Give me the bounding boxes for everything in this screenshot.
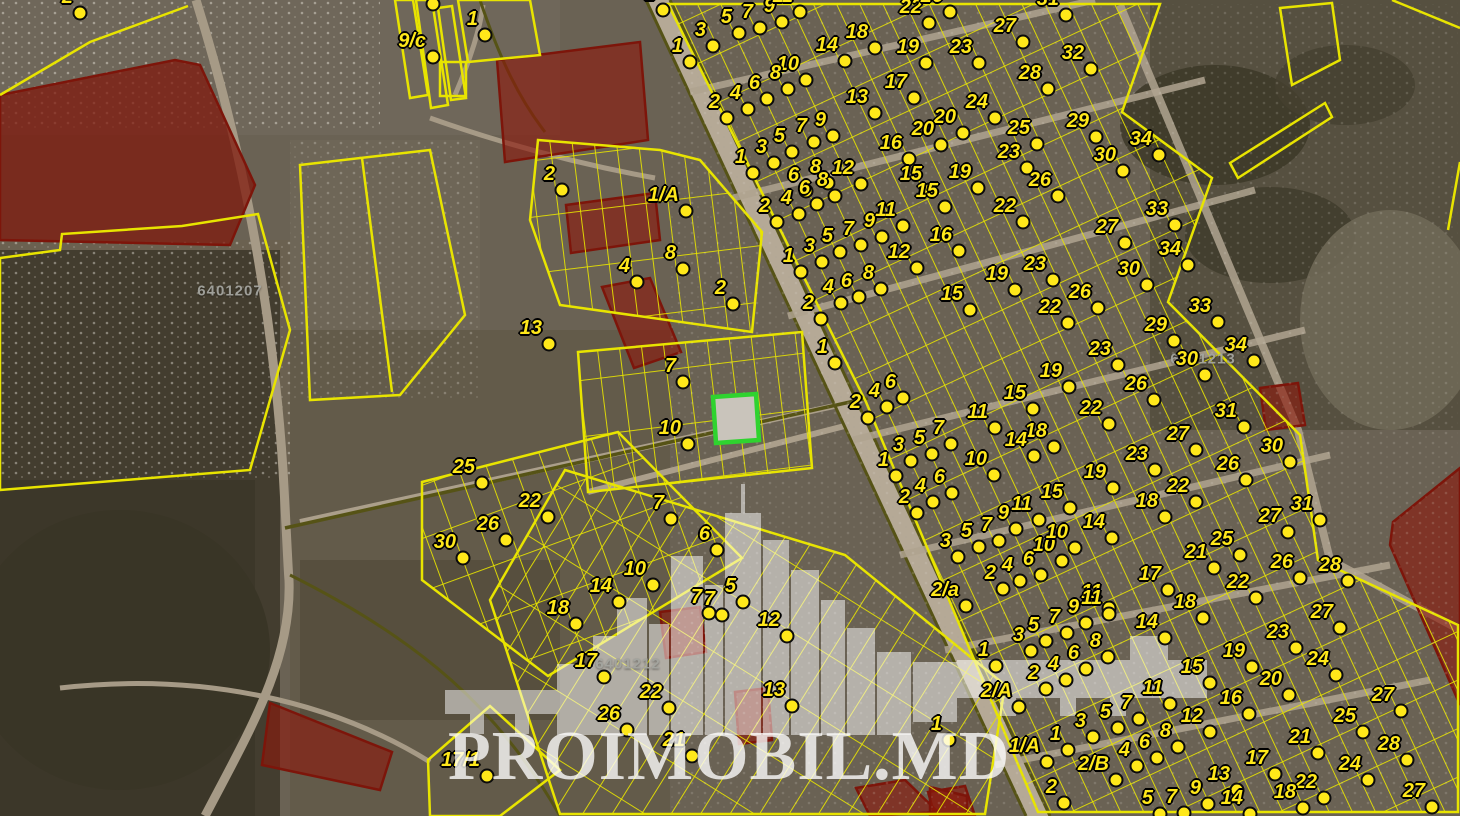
parcel-number-label: 13: [520, 318, 542, 338]
parcel-marker[interactable]: [1061, 743, 1076, 758]
parcel-number-label: 20: [1260, 669, 1282, 689]
parcel-number-label: 5: [774, 126, 785, 146]
parcel-marker[interactable]: [1116, 164, 1131, 179]
parcel-marker[interactable]: [996, 582, 1011, 597]
parcel-marker[interactable]: [1008, 283, 1023, 298]
parcel-marker[interactable]: [794, 265, 809, 280]
parcel-marker[interactable]: [1168, 218, 1183, 233]
parcel-marker[interactable]: [706, 39, 721, 54]
parcel-marker[interactable]: [426, 0, 441, 12]
parcel-marker[interactable]: [1177, 806, 1192, 816]
parcel-marker[interactable]: [1032, 513, 1047, 528]
parcel-marker[interactable]: [963, 303, 978, 318]
parcel-marker[interactable]: [569, 617, 584, 632]
parcel-number-label: 4: [869, 381, 880, 401]
parcel-number-label: 20: [912, 119, 934, 139]
parcel-marker[interactable]: [1333, 621, 1348, 636]
parcel-number-label: 19: [1223, 641, 1245, 661]
parcel-number-label: 23: [1024, 254, 1046, 274]
parcel-marker[interactable]: [810, 197, 825, 212]
parcel-marker[interactable]: [1152, 148, 1167, 163]
parcel-number-label: 30: [1176, 349, 1198, 369]
parcel-marker[interactable]: [1118, 236, 1133, 251]
parcel-number-label: 12: [758, 610, 780, 630]
parcel-number-label: 30: [434, 532, 456, 552]
parcel-marker[interactable]: [944, 437, 959, 452]
parcel-marker[interactable]: [1203, 725, 1218, 740]
parcel-number-label: 9: [1068, 597, 1079, 617]
parcel-number-label: 1: [878, 450, 889, 470]
parcel-number-label: 1: [467, 9, 478, 29]
parcel-marker[interactable]: [781, 82, 796, 97]
parcel-marker[interactable]: [732, 26, 747, 41]
parcel-number-label: 6: [885, 372, 896, 392]
parcel-marker[interactable]: [1245, 660, 1260, 675]
parcel-marker[interactable]: [662, 701, 677, 716]
parcel-number-label: 26: [1029, 170, 1051, 190]
parcel-marker[interactable]: [1341, 574, 1356, 589]
parcel-marker[interactable]: [896, 391, 911, 406]
parcel-marker[interactable]: [612, 595, 627, 610]
parcel-marker[interactable]: [785, 699, 800, 714]
parcel-number-label: 2: [899, 487, 910, 507]
parcel-marker[interactable]: [1051, 189, 1066, 204]
parcel-number-label: 14: [1083, 512, 1105, 532]
parcel-marker[interactable]: [770, 215, 785, 230]
parcel-marker[interactable]: [868, 41, 883, 56]
parcel-marker[interactable]: [760, 92, 775, 107]
parcel-marker[interactable]: [1167, 334, 1182, 349]
parcel-marker[interactable]: [555, 183, 570, 198]
parcel-marker[interactable]: [681, 437, 696, 452]
parcel-marker[interactable]: [1046, 273, 1061, 288]
parcel-number-label: 23: [1267, 622, 1289, 642]
parcel-marker[interactable]: [1400, 753, 1415, 768]
parcel-marker[interactable]: [868, 106, 883, 121]
parcel-number-label: 25: [1334, 706, 1356, 726]
parcel-marker[interactable]: [852, 290, 867, 305]
parcel-marker[interactable]: [971, 181, 986, 196]
parcel-marker[interactable]: [1283, 455, 1298, 470]
parcel-marker[interactable]: [1111, 358, 1126, 373]
parcel-number-label: 2/B: [1078, 754, 1109, 774]
parcel-marker[interactable]: [73, 6, 88, 21]
parcel-number-label: 2: [645, 0, 656, 4]
parcel-number-label: 7: [742, 2, 753, 22]
parcel-marker[interactable]: [896, 219, 911, 234]
parcel-number-label: 11: [772, 0, 793, 6]
parcel-marker[interactable]: [1084, 62, 1099, 77]
parcel-number-label: 4: [781, 188, 792, 208]
parcel-marker[interactable]: [988, 111, 1003, 126]
parcel-marker[interactable]: [1163, 697, 1178, 712]
parcel-marker[interactable]: [767, 156, 782, 171]
parcel-marker[interactable]: [854, 238, 869, 253]
parcel-number-label: 10: [659, 418, 681, 438]
parcel-marker[interactable]: [1068, 541, 1083, 556]
parcel-number-label: 12: [888, 242, 910, 262]
parcel-number-label: 5: [721, 7, 732, 27]
parcel-marker[interactable]: [1296, 801, 1311, 816]
parcel-marker[interactable]: [951, 550, 966, 565]
parcel-marker[interactable]: [1086, 730, 1101, 745]
parcel-marker[interactable]: [1425, 800, 1440, 815]
parcel-marker[interactable]: [922, 16, 937, 31]
parcel-marker[interactable]: [1171, 740, 1186, 755]
parcel-marker[interactable]: [746, 166, 761, 181]
parcel-marker[interactable]: [792, 207, 807, 222]
parcel-marker[interactable]: [1079, 616, 1094, 631]
parcel-number-label: 34: [1130, 129, 1152, 149]
parcel-number-label: 28: [1378, 734, 1400, 754]
parcel-marker[interactable]: [814, 312, 829, 327]
parcel-marker[interactable]: [1147, 393, 1162, 408]
parcel-number-label: 16: [880, 133, 902, 153]
parcel-number-label: 8: [863, 263, 874, 283]
parcel-number-label: 29: [1145, 315, 1167, 335]
parcel-number-label: 18: [1025, 421, 1047, 441]
parcel-marker[interactable]: [478, 28, 493, 43]
parcel-number-label: 13: [763, 680, 785, 700]
parcel-marker[interactable]: [1282, 688, 1297, 703]
parcel-marker[interactable]: [907, 91, 922, 106]
parcel-number-label: 1: [783, 246, 794, 266]
parcel-marker[interactable]: [1394, 704, 1409, 719]
parcel-marker[interactable]: [541, 510, 556, 525]
parcel-marker[interactable]: [1150, 751, 1165, 766]
parcel-marker[interactable]: [834, 296, 849, 311]
parcel-marker[interactable]: [683, 55, 698, 70]
parcel-number-label: 15: [1181, 657, 1203, 677]
parcel-marker[interactable]: [1091, 301, 1106, 316]
parcel-number-label: 26: [921, 0, 943, 6]
parcel-marker[interactable]: [1040, 755, 1055, 770]
parcel-marker[interactable]: [1061, 316, 1076, 331]
parcel-number-label: 2: [803, 293, 814, 313]
parcel-marker[interactable]: [910, 506, 925, 521]
parcel-marker[interactable]: [664, 512, 679, 527]
parcel-number-label: 30: [1261, 436, 1283, 456]
parcel-number-label: 2: [62, 0, 73, 7]
parcel-marker[interactable]: [1041, 82, 1056, 97]
parcel-marker[interactable]: [741, 102, 756, 117]
parcel-marker[interactable]: [1203, 676, 1218, 691]
parcel-marker[interactable]: [499, 533, 514, 548]
parcel-marker[interactable]: [753, 21, 768, 36]
parcel-number-label: 5: [822, 226, 833, 246]
parcel-marker[interactable]: [1039, 634, 1054, 649]
parcel-marker[interactable]: [1243, 807, 1258, 816]
parcel-marker[interactable]: [1196, 611, 1211, 626]
parcel-number-label: 9: [864, 211, 875, 231]
parcel-marker[interactable]: [426, 50, 441, 65]
parcel-number-label: 1: [672, 36, 683, 56]
parcel-number-label: 27: [994, 16, 1016, 36]
parcel-marker[interactable]: [1140, 278, 1155, 293]
parcel-marker[interactable]: [828, 356, 843, 371]
parcel-number-label: 8: [1160, 721, 1171, 741]
parcel-marker[interactable]: [456, 551, 471, 566]
parcel-marker[interactable]: [1189, 495, 1204, 510]
parcel-number-label: 27: [1311, 602, 1333, 622]
parcel-number-label: 19: [1084, 462, 1106, 482]
parcel-marker[interactable]: [833, 245, 848, 260]
parcel-number-label: 2: [709, 92, 720, 112]
parcel-number-label: 9: [815, 110, 826, 130]
parcel-marker[interactable]: [1105, 531, 1120, 546]
parcel-number-label: 19: [949, 162, 971, 182]
parcel-marker[interactable]: [1201, 797, 1216, 812]
parcel-marker[interactable]: [1057, 796, 1072, 811]
parcel-marker[interactable]: [910, 261, 925, 276]
parcel-marker[interactable]: [1047, 440, 1062, 455]
parcel-marker[interactable]: [1361, 773, 1376, 788]
parcel-marker[interactable]: [815, 255, 830, 270]
parcel-marker[interactable]: [1079, 662, 1094, 677]
parcel-marker[interactable]: [1181, 258, 1196, 273]
parcel-marker[interactable]: [656, 3, 671, 18]
parcel-number-label: 18: [846, 22, 868, 42]
parcel-marker[interactable]: [1034, 568, 1049, 583]
parcel-marker[interactable]: [904, 454, 919, 469]
parcel-marker[interactable]: [1281, 525, 1296, 540]
parcel-marker[interactable]: [1026, 402, 1041, 417]
parcel-marker[interactable]: [938, 200, 953, 215]
parcel-marker[interactable]: [874, 282, 889, 297]
parcel-marker[interactable]: [1158, 631, 1173, 646]
parcel-marker[interactable]: [785, 145, 800, 160]
parcel-number-label: 22: [900, 0, 922, 17]
parcel-marker[interactable]: [945, 486, 960, 501]
parcel-marker[interactable]: [679, 204, 694, 219]
parcel-marker[interactable]: [1012, 700, 1027, 715]
parcel-marker[interactable]: [956, 126, 971, 141]
parcel-marker[interactable]: [597, 670, 612, 685]
parcel-number-label: 4: [1119, 740, 1130, 760]
parcel-marker[interactable]: [1106, 481, 1121, 496]
parcel-marker[interactable]: [987, 468, 1002, 483]
parcel-marker[interactable]: [1242, 707, 1257, 722]
parcel-number-label: 27: [1167, 424, 1189, 444]
parcel-marker[interactable]: [988, 421, 1003, 436]
parcel-marker[interactable]: [989, 659, 1004, 674]
parcel-number-label: 6: [841, 271, 852, 291]
parcel-number-label: 21: [1289, 727, 1311, 747]
parcel-marker[interactable]: [972, 540, 987, 555]
parcel-marker[interactable]: [1247, 354, 1262, 369]
parcel-number-label: 9: [998, 503, 1009, 523]
parcel-number-label: 30: [1118, 259, 1140, 279]
parcel-marker[interactable]: [1027, 449, 1042, 464]
parcel-number-label: 26: [1069, 282, 1091, 302]
parcel-number-label: 17: [1246, 748, 1268, 768]
parcel-marker[interactable]: [1249, 591, 1264, 606]
parcel-marker[interactable]: [926, 495, 941, 510]
parcel-marker[interactable]: [710, 543, 725, 558]
parcel-number-label: 34: [1225, 335, 1247, 355]
parcel-number-label: 2: [850, 392, 861, 412]
parcel-number-label: 5: [914, 428, 925, 448]
parcel-marker[interactable]: [1102, 607, 1117, 622]
parcel-marker[interactable]: [807, 135, 822, 150]
parcel-marker[interactable]: [715, 608, 730, 623]
parcel-marker[interactable]: [925, 447, 940, 462]
parcel-number-label: 19: [1040, 361, 1062, 381]
parcel-number-label: 17: [1139, 564, 1161, 584]
parcel-number-label: 23: [1089, 339, 1111, 359]
parcel-marker[interactable]: [1111, 721, 1126, 736]
parcel-number-label: 32: [1062, 43, 1084, 63]
parcel-number-label: 6: [934, 467, 945, 487]
parcel-marker[interactable]: [972, 56, 987, 71]
parcel-marker[interactable]: [1158, 510, 1173, 525]
parcel-marker[interactable]: [1237, 420, 1252, 435]
parcel-number-label: 30: [1094, 145, 1116, 165]
parcel-marker[interactable]: [826, 129, 841, 144]
parcel-marker[interactable]: [861, 411, 876, 426]
parcel-marker[interactable]: [1356, 725, 1371, 740]
parcel-marker[interactable]: [943, 5, 958, 20]
parcel-marker[interactable]: [676, 262, 691, 277]
parcel-number-label: 3: [940, 531, 951, 551]
parcel-marker[interactable]: [1101, 650, 1116, 665]
parcel-number-label: 1: [1050, 724, 1061, 744]
parcel-number-label: 8: [770, 63, 781, 83]
parcel-number-label: 8: [1090, 631, 1101, 651]
parcel-marker[interactable]: [1130, 759, 1145, 774]
parcel-marker[interactable]: [1060, 626, 1075, 641]
parcel-number-label: 33: [1189, 296, 1211, 316]
parcel-marker[interactable]: [1059, 8, 1074, 23]
parcel-number-label: 6: [799, 178, 810, 198]
parcel-number-label: 9/c: [398, 31, 426, 51]
parcel-number-label: 4: [1048, 654, 1059, 674]
parcel-marker[interactable]: [1024, 644, 1039, 659]
parcel-marker[interactable]: [1009, 522, 1024, 537]
parcel-marker[interactable]: [1148, 463, 1163, 478]
parcel-marker[interactable]: [646, 578, 661, 593]
parcel-marker[interactable]: [630, 275, 645, 290]
parcel-marker[interactable]: [1016, 215, 1031, 230]
parcel-number-label: 17: [575, 651, 597, 671]
parcel-marker[interactable]: [1063, 501, 1078, 516]
parcel-marker[interactable]: [1189, 443, 1204, 458]
parcel-number-label: 22: [1167, 476, 1189, 496]
markers-layer: 219/c2211/A84213710252226307610141875712…: [0, 0, 1460, 816]
parcel-marker[interactable]: [1059, 673, 1074, 688]
parcel-marker[interactable]: [1102, 417, 1117, 432]
parcel-number-label: 27: [1096, 217, 1118, 237]
parcel-number-label: 6: [749, 73, 760, 93]
parcel-number-label: 10: [624, 559, 646, 579]
parcel-marker[interactable]: [1062, 380, 1077, 395]
parcel-marker[interactable]: [726, 297, 741, 312]
parcel-marker[interactable]: [775, 15, 790, 30]
parcel-number-label: 31: [1215, 401, 1237, 421]
parcel-number-label: 6: [1068, 643, 1079, 663]
parcel-marker[interactable]: [934, 138, 949, 153]
parcel-number-label: 4: [1002, 555, 1013, 575]
parcel-marker[interactable]: [854, 177, 869, 192]
parcel-marker[interactable]: [959, 599, 974, 614]
parcel-marker[interactable]: [880, 400, 895, 415]
parcel-marker[interactable]: [1030, 137, 1045, 152]
parcel-number-label: 15: [1041, 482, 1063, 502]
parcel-marker[interactable]: [799, 73, 814, 88]
parcel-marker[interactable]: [780, 629, 795, 644]
parcel-number-label: 9: [1190, 778, 1201, 798]
parcel-number-label: 13: [1208, 764, 1230, 784]
parcel-marker[interactable]: [1311, 746, 1326, 761]
parcel-number-label: 3: [1075, 711, 1086, 731]
parcel-marker[interactable]: [1089, 130, 1104, 145]
parcel-marker[interactable]: [919, 56, 934, 71]
parcel-number-label: 14: [1221, 788, 1243, 808]
parcel-number-label: 24: [966, 92, 988, 112]
parcel-number-label: 6: [699, 524, 710, 544]
parcel-marker[interactable]: [1289, 641, 1304, 656]
parcel-marker[interactable]: [1268, 767, 1283, 782]
parcel-marker[interactable]: [676, 375, 691, 390]
parcel-marker[interactable]: [889, 469, 904, 484]
parcel-marker[interactable]: [992, 534, 1007, 549]
parcel-marker[interactable]: [1016, 35, 1031, 50]
parcel-number-label: 21: [1185, 542, 1207, 562]
parcel-marker[interactable]: [1013, 574, 1028, 589]
parcel-marker[interactable]: [1039, 682, 1054, 697]
parcel-number-label: 5: [725, 576, 736, 596]
parcel-number-label: 22: [1039, 297, 1061, 317]
parcel-marker[interactable]: [1153, 807, 1168, 816]
parcel-marker[interactable]: [1313, 513, 1328, 528]
parcel-marker[interactable]: [1198, 368, 1213, 383]
parcel-number-label: 18: [1136, 491, 1158, 511]
parcel-marker[interactable]: [1132, 712, 1147, 727]
parcel-number-label: 3: [1013, 625, 1024, 645]
parcel-marker[interactable]: [542, 337, 557, 352]
parcel-marker[interactable]: [1207, 561, 1222, 576]
parcel-number-label: 3: [804, 236, 815, 256]
parcel-marker[interactable]: [828, 189, 843, 204]
parcel-marker[interactable]: [1239, 473, 1254, 488]
parcel-number-label: 33: [1146, 199, 1168, 219]
parcel-marker[interactable]: [1109, 773, 1124, 788]
parcel-marker[interactable]: [1055, 554, 1070, 569]
parcel-number-label: 2: [1028, 663, 1039, 683]
parcel-number-label: 11: [1142, 678, 1163, 698]
parcel-number-label: 1/A: [1009, 736, 1040, 756]
parcel-number-label: 18: [1174, 592, 1196, 612]
parcel-marker[interactable]: [952, 244, 967, 259]
parcel-marker[interactable]: [838, 54, 853, 69]
parcel-marker[interactable]: [720, 111, 735, 126]
parcel-marker[interactable]: [736, 595, 751, 610]
parcel-number-label: 24: [1307, 649, 1329, 669]
parcel-marker[interactable]: [1293, 571, 1308, 586]
parcel-number-label: 2: [985, 563, 996, 583]
parcel-marker[interactable]: [1329, 668, 1344, 683]
parcel-marker[interactable]: [475, 476, 490, 491]
parcel-marker[interactable]: [793, 5, 808, 20]
parcel-number-label: 4: [823, 277, 834, 297]
parcel-marker[interactable]: [1233, 548, 1248, 563]
parcel-number-label: 7: [933, 418, 944, 438]
parcel-number-label: 25: [1211, 529, 1233, 549]
parcel-marker[interactable]: [1211, 315, 1226, 330]
parcel-marker[interactable]: [1317, 791, 1332, 806]
map-canvas[interactable]: 640120764012126401213 219/c2211/A8421371…: [0, 0, 1460, 816]
parcel-number-label: 34: [1159, 239, 1181, 259]
